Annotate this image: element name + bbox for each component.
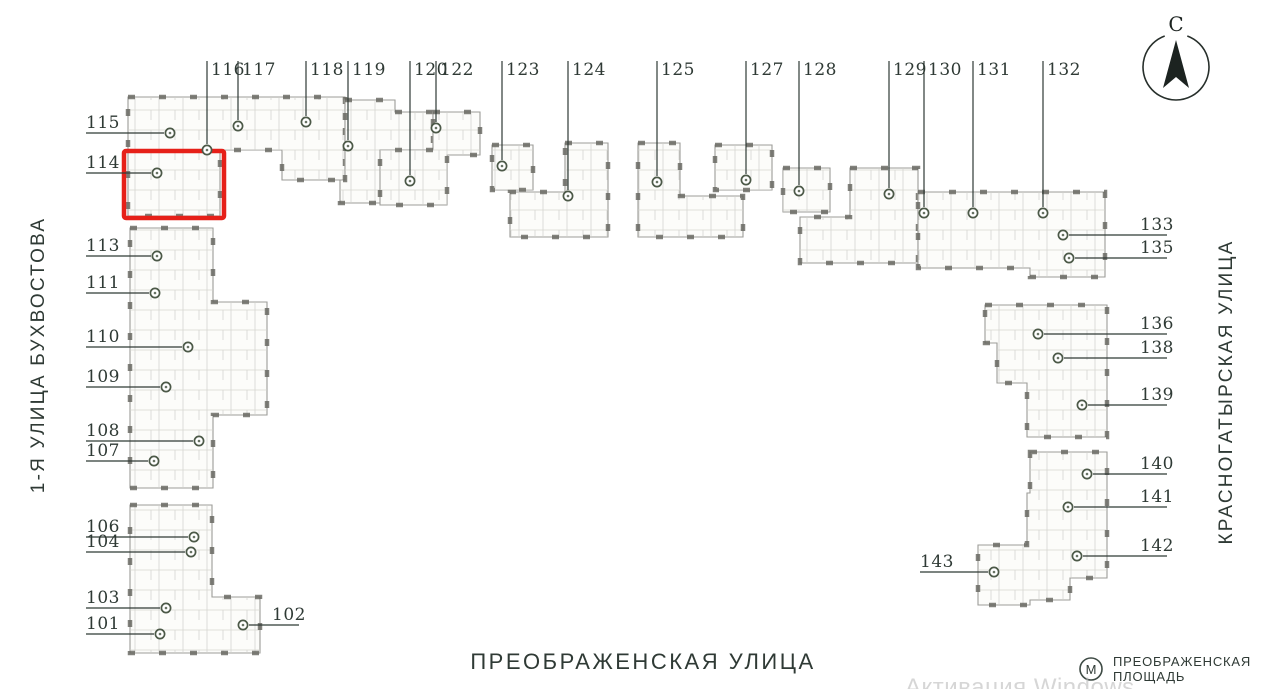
unit-107-label: 107 bbox=[86, 441, 120, 461]
unit-142-label: 142 bbox=[1140, 536, 1174, 556]
unit-114-marker-dot bbox=[156, 172, 159, 175]
unit-125-label: 125 bbox=[661, 60, 695, 80]
compass-north-indicator: С bbox=[1143, 12, 1209, 100]
unit-138-label: 138 bbox=[1140, 338, 1174, 358]
site-plan-page: 1011021031041061071081091101111131141151… bbox=[0, 0, 1261, 689]
unit-111-marker-dot bbox=[154, 292, 157, 295]
unit-130-label: 130 bbox=[928, 60, 962, 80]
unit-118-label: 118 bbox=[310, 60, 344, 80]
unit-110-label: 110 bbox=[86, 327, 120, 347]
unit-136-label: 136 bbox=[1140, 314, 1174, 334]
unit-140-marker-dot bbox=[1086, 473, 1089, 476]
street-label-bottom: ПРЕОБРАЖЕНСКАЯ УЛИЦА bbox=[470, 649, 815, 674]
unit-122-marker-dot bbox=[435, 127, 438, 130]
bldg-101-106 bbox=[130, 505, 260, 653]
unit-130-marker-dot bbox=[923, 212, 926, 215]
unit-132-marker-dot bbox=[1042, 212, 1045, 215]
unit-133-label: 133 bbox=[1140, 215, 1174, 235]
unit-104-marker-dot bbox=[190, 551, 193, 554]
street-label-right: КРАСНОГАТЫРСКАЯ УЛИЦА bbox=[1216, 240, 1237, 545]
bldg-136-139 bbox=[985, 305, 1107, 437]
unit-123-label: 123 bbox=[506, 60, 540, 80]
unit-128-marker-dot bbox=[798, 190, 801, 193]
unit-131-label: 131 bbox=[977, 60, 1011, 80]
unit-102-marker-dot bbox=[242, 624, 245, 627]
site-plan-canvas: 1011021031041061071081091101111131141151… bbox=[0, 0, 1261, 689]
unit-108-label: 108 bbox=[86, 421, 120, 441]
unit-138-marker-dot bbox=[1057, 357, 1060, 360]
unit-107-marker-dot bbox=[153, 460, 156, 463]
unit-124-label: 124 bbox=[572, 60, 606, 80]
unit-116-marker-dot bbox=[206, 149, 209, 152]
bldg-128 bbox=[783, 168, 830, 212]
unit-108-marker-dot bbox=[198, 440, 201, 443]
unit-141-marker-dot bbox=[1067, 506, 1070, 509]
unit-125-marker-dot bbox=[656, 181, 659, 184]
unit-119-marker-dot bbox=[347, 145, 350, 148]
windows-activation-watermark: Активация Windows bbox=[905, 674, 1135, 689]
unit-141-label: 141 bbox=[1140, 487, 1174, 507]
unit-106-marker-dot bbox=[193, 536, 196, 539]
metro-label-line1: ПРЕОБРАЖЕНСКАЯ bbox=[1113, 654, 1251, 669]
unit-103-label: 103 bbox=[86, 588, 120, 608]
unit-114-label: 114 bbox=[86, 153, 120, 173]
unit-101-marker-dot bbox=[159, 633, 162, 636]
north-letter: С bbox=[1168, 12, 1183, 36]
unit-131-marker-dot bbox=[972, 212, 975, 215]
unit-109-label: 109 bbox=[86, 367, 120, 387]
unit-129-marker-dot bbox=[888, 193, 891, 196]
unit-111-label: 111 bbox=[86, 273, 120, 293]
unit-115-marker-dot bbox=[169, 132, 172, 135]
unit-133-marker-dot bbox=[1062, 234, 1065, 237]
unit-142-marker-dot bbox=[1076, 555, 1079, 558]
unit-135-label: 135 bbox=[1140, 238, 1174, 258]
unit-122-label: 122 bbox=[440, 60, 474, 80]
unit-102-label: 102 bbox=[272, 605, 306, 625]
unit-128-label: 128 bbox=[803, 60, 837, 80]
bldg-114-117 bbox=[128, 97, 345, 216]
buildings-layer bbox=[128, 97, 1107, 653]
bldg-107-113 bbox=[130, 228, 267, 488]
unit-127-marker-dot bbox=[745, 179, 748, 182]
unit-123-marker-dot bbox=[501, 165, 504, 168]
unit-129-label: 129 bbox=[893, 60, 927, 80]
unit-135-marker-dot bbox=[1068, 257, 1071, 260]
unit-124-marker-dot bbox=[567, 195, 570, 198]
unit-132-label: 132 bbox=[1047, 60, 1081, 80]
unit-120-marker-dot bbox=[409, 180, 412, 183]
unit-136-marker-dot bbox=[1037, 333, 1040, 336]
unit-118-marker-dot bbox=[305, 121, 308, 124]
unit-101-label: 101 bbox=[86, 614, 120, 634]
unit-143-marker-dot bbox=[993, 571, 996, 574]
unit-116-label: 116 bbox=[211, 60, 245, 80]
north-needle-icon bbox=[1163, 40, 1189, 88]
unit-103-marker-dot bbox=[165, 607, 168, 610]
unit-117-label: 117 bbox=[242, 60, 276, 80]
unit-140-label: 140 bbox=[1140, 454, 1174, 474]
unit-113-marker-dot bbox=[156, 255, 159, 258]
street-label-left: 1-Я УЛИЦА БУХВОСТОВА bbox=[28, 217, 49, 493]
unit-115-label: 115 bbox=[86, 113, 120, 133]
unit-139-label: 139 bbox=[1140, 385, 1174, 405]
unit-113-label: 113 bbox=[86, 236, 120, 256]
unit-143-label: 143 bbox=[920, 552, 954, 572]
unit-109-marker-dot bbox=[165, 386, 168, 389]
unit-127-label: 127 bbox=[750, 60, 784, 80]
unit-119-label: 119 bbox=[352, 60, 386, 80]
unit-110-marker-dot bbox=[187, 346, 190, 349]
unit-106-label: 106 bbox=[86, 517, 120, 537]
unit-139-marker-dot bbox=[1081, 404, 1084, 407]
unit-117-marker-dot bbox=[237, 125, 240, 128]
